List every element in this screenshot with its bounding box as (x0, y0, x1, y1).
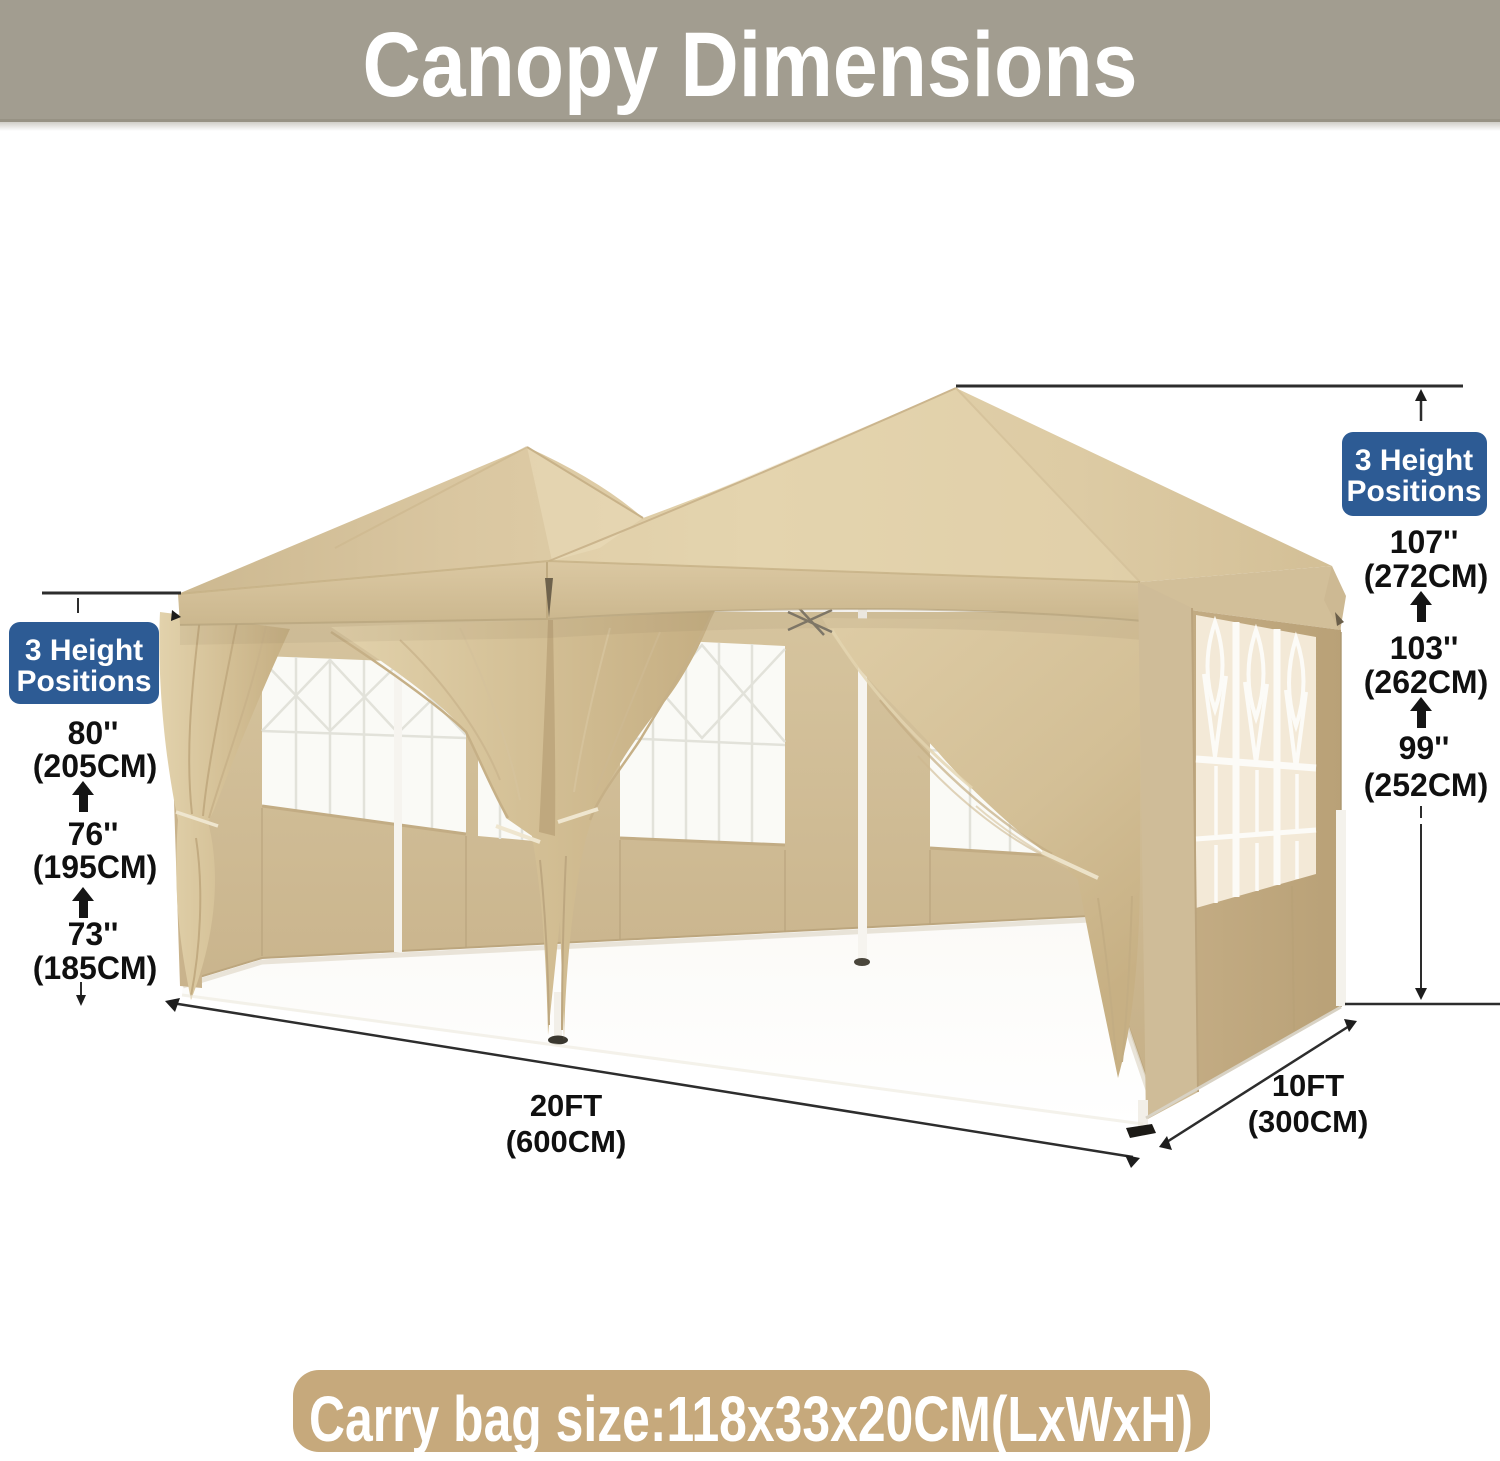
svg-text:20FT: 20FT (530, 1088, 602, 1123)
svg-text:3 Height: 3 Height (1355, 444, 1473, 477)
svg-text:(252CM): (252CM) (1364, 767, 1488, 803)
svg-text:73'': 73'' (68, 916, 119, 952)
svg-text:99'': 99'' (1399, 730, 1450, 766)
svg-text:103'': 103'' (1390, 630, 1459, 666)
svg-text:Positions: Positions (16, 665, 151, 698)
svg-text:10FT: 10FT (1272, 1068, 1344, 1103)
svg-text:Canopy Dimensions: Canopy Dimensions (363, 14, 1138, 116)
svg-text:(600CM): (600CM) (506, 1124, 627, 1159)
svg-text:(262CM): (262CM) (1364, 664, 1488, 700)
svg-text:(205CM): (205CM) (33, 748, 157, 784)
svg-text:Positions: Positions (1346, 475, 1481, 508)
svg-text:107'': 107'' (1390, 524, 1459, 560)
svg-text:Carry bag size:118x33x20CM(LxW: Carry bag size:118x33x20CM(LxWxH) (309, 1383, 1193, 1455)
svg-text:3 Height: 3 Height (25, 634, 143, 667)
svg-text:80'': 80'' (68, 715, 119, 751)
svg-text:(272CM): (272CM) (1364, 558, 1488, 594)
svg-text:76'': 76'' (68, 816, 119, 852)
svg-text:(195CM): (195CM) (33, 849, 157, 885)
svg-text:(185CM): (185CM) (33, 950, 157, 986)
svg-text:(300CM): (300CM) (1248, 1104, 1369, 1139)
